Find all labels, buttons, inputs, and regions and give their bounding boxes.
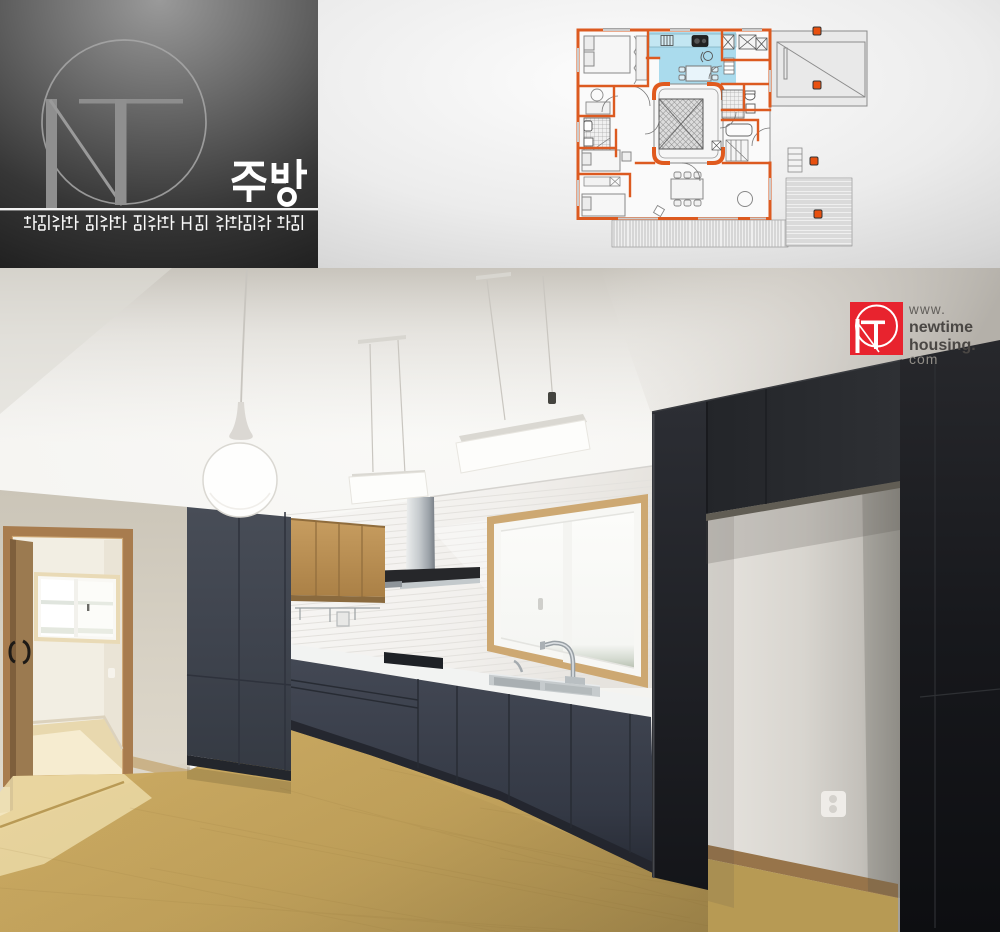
- svg-text:com: com: [909, 351, 938, 367]
- svg-text:newtime: newtime: [909, 319, 973, 336]
- svg-text:www.: www.: [908, 302, 946, 317]
